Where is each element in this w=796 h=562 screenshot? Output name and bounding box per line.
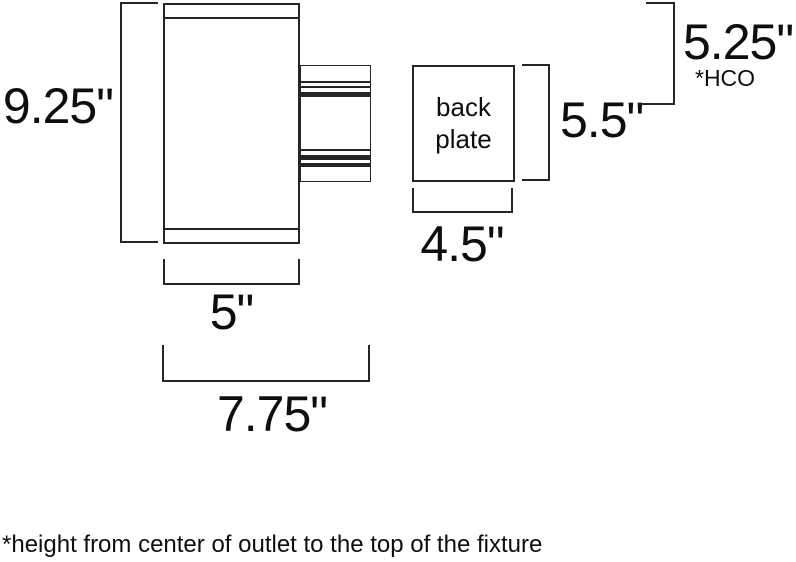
fixture-projection-label: 7.75" (166, 389, 378, 439)
back-plate-outline: back plate (412, 65, 515, 182)
backplate-height-tick-bottom (522, 179, 550, 181)
hco-value-label: 5.25" (683, 17, 793, 67)
fixture-body-outline (163, 3, 300, 244)
backplate-height-label: 5.5" (560, 95, 643, 145)
arm-ridge-band (301, 163, 370, 167)
height-dim-bracket-line (120, 2, 122, 243)
backplate-width-label: 4.5" (407, 219, 517, 269)
back-plate-label-line1: back (436, 92, 491, 124)
height-dim-tick-top (120, 2, 158, 4)
fixture-top-cap-line (164, 17, 299, 19)
dimension-diagram: 9.25" 5" 7.75" back plate 4.5" 5.5" 5.25… (0, 0, 796, 562)
backplate-height-tick-top (522, 64, 550, 66)
arm-ridge-line (301, 81, 370, 83)
hco-dim-tick-top (646, 2, 675, 4)
backplate-width-tick-right (511, 188, 513, 213)
backplate-width-tick-left (412, 188, 414, 213)
height-dim-tick-bottom (120, 241, 158, 243)
footnote-text: *height from center of outlet to the top… (2, 531, 542, 559)
back-plate-label-line2: plate (435, 124, 491, 156)
projection-dim-tick-right (368, 345, 370, 382)
arm-ridge-line (301, 86, 370, 88)
arm-ridge-band (301, 92, 370, 97)
projection-dim-tick-left (162, 345, 164, 382)
fixture-bottom-cap-line (164, 228, 299, 230)
arm-ridge-line (301, 149, 370, 151)
backplate-height-bracket-line (548, 64, 550, 181)
width-dim-tick-left (163, 259, 165, 285)
fixture-width-label: 5" (163, 287, 300, 337)
backplate-width-bracket-line (412, 211, 513, 213)
arm-ridge-band (301, 155, 370, 160)
width-dim-tick-right (298, 259, 300, 285)
fixture-height-label: 9.25" (0, 81, 113, 131)
hco-dim-tick-bottom (639, 103, 675, 105)
hco-abbrev-label: *HCO (695, 67, 755, 90)
hco-dim-bracket-line (673, 2, 675, 105)
projection-dim-bracket-line (162, 380, 370, 382)
